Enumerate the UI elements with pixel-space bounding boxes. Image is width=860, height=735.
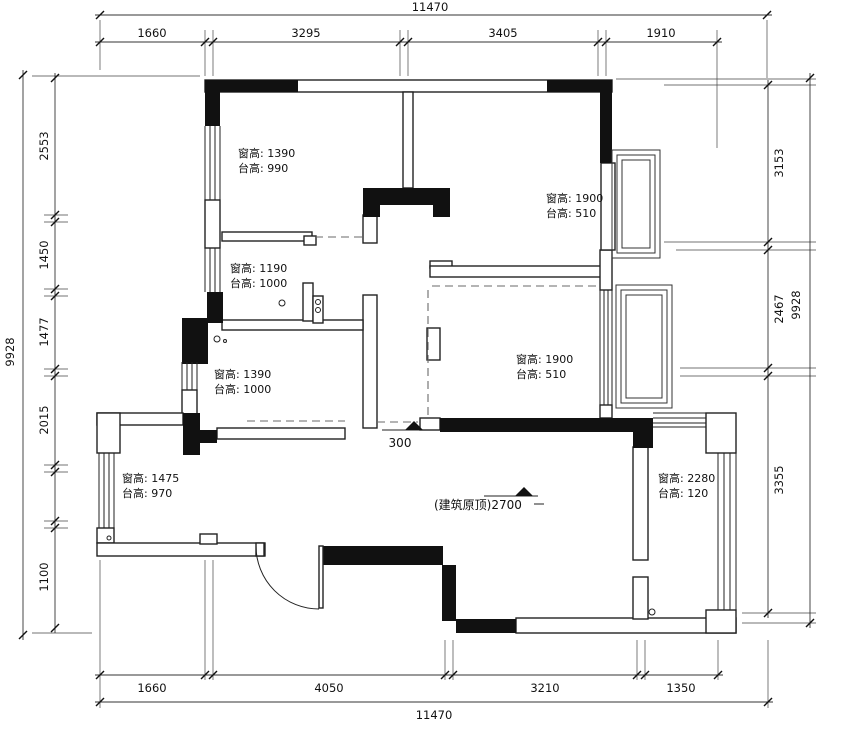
dimension-label: 1910	[646, 26, 675, 40]
dimension-label: 3405	[488, 26, 517, 40]
annotation-room-a-sill-height: 台高: 990	[238, 161, 288, 175]
floor-plan-page: 1660329534051910114701660405032101350114…	[0, 0, 860, 735]
dimension-label: 2015	[37, 405, 51, 434]
annotation-room-b-window-height: 窗高: 1900	[546, 191, 603, 205]
annotation-room-g-sill-height: 台高: 120	[658, 486, 708, 500]
annotation-room-g-window-height: 窗高: 2280	[658, 471, 715, 485]
dimension-label: 9928	[3, 337, 17, 366]
annotation-room-e-window-height: 窗高: 1390	[214, 367, 271, 381]
door-leaf	[319, 546, 323, 608]
window-living-left	[99, 453, 114, 528]
annotation-room-c-sill-height: 台高: 510	[516, 367, 566, 381]
annotation-room-e-sill-height: 台高: 1000	[214, 382, 271, 396]
dimension-label: 1660	[137, 26, 166, 40]
dimension-label: 11470	[416, 708, 453, 722]
dimension-label: 3210	[530, 681, 559, 695]
elevation-markers: 300 (建筑原顶)2700	[382, 421, 544, 512]
ceiling-height-label: (建筑原顶)2700	[434, 497, 522, 512]
dimension-label: 2553	[37, 131, 51, 160]
floor-plan-drawing: 1660329534051910114701660405032101350114…	[0, 0, 860, 735]
bay-windows	[612, 150, 672, 408]
dimension-label: 1660	[137, 681, 166, 695]
annotation-room-f-sill-height: 台高: 970	[122, 486, 172, 500]
annotation-room-a-window-height: 窗高: 1390	[238, 146, 295, 160]
ceiling-marker-triangle-icon	[515, 487, 533, 496]
dimension-label: 11470	[412, 0, 449, 14]
window-left-upper	[205, 126, 220, 200]
dimension-label: 1350	[666, 681, 695, 695]
window-left-lower	[182, 362, 197, 390]
dimension-label: 3295	[291, 26, 320, 40]
door-jamb-left	[256, 543, 264, 556]
annotation-room-d-sill-height: 台高: 1000	[230, 276, 287, 290]
window-balcony-top	[653, 413, 706, 427]
dimension-label: 2467	[772, 294, 786, 323]
dimension-label: 1450	[37, 240, 51, 269]
dimension-extension-lines	[32, 20, 816, 708]
bay-window-mid-right	[616, 285, 672, 408]
dimension-label: 3153	[772, 148, 786, 177]
dimension-label: 9928	[789, 290, 803, 319]
dimension-label: 4050	[314, 681, 343, 695]
annotation-room-f-window-height: 窗高: 1475	[122, 471, 179, 485]
dimension-label: 1477	[37, 317, 51, 346]
entry-door	[256, 543, 323, 609]
window-right-mid	[600, 290, 612, 405]
window-balcony-right	[718, 453, 736, 610]
annotation-room-b-sill-height: 台高: 510	[546, 206, 596, 220]
dimension-label: 3355	[772, 465, 786, 494]
bay-window-top-right	[612, 150, 660, 258]
dimension-label: 1100	[37, 562, 51, 591]
window-left-mid	[205, 248, 220, 292]
level-entry-value: 300	[389, 436, 412, 450]
annotation-room-c-window-height: 窗高: 1900	[516, 352, 573, 366]
annotation-room-d-window-height: 窗高: 1190	[230, 261, 287, 275]
